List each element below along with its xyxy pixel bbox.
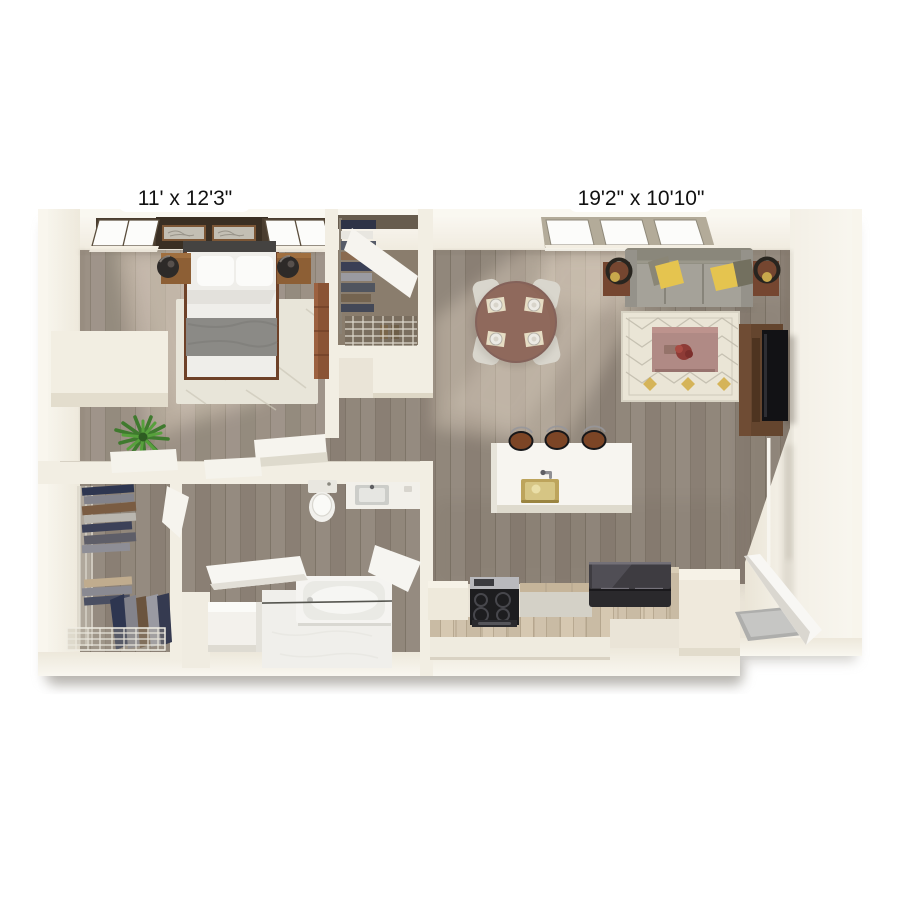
svg-text:11' x 12'3": 11' x 12'3"	[138, 187, 232, 210]
svg-text:19'2" x 10'10": 19'2" x 10'10"	[578, 187, 705, 210]
